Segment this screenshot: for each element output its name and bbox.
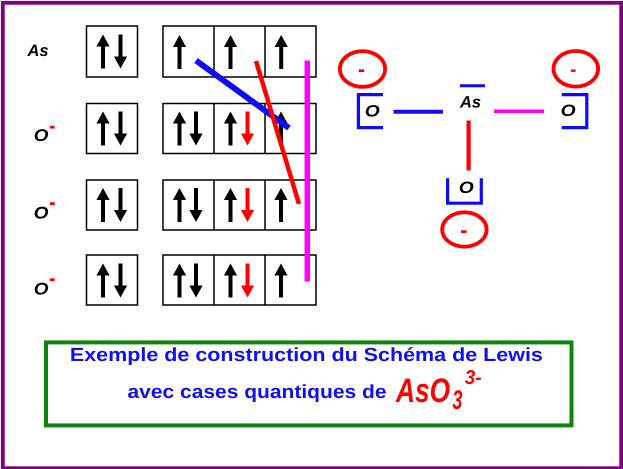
svg-text:AsO: AsO [395,372,450,410]
svg-text:Exemple de construction du Sch: Exemple de construction du Schéma de Lew… [70,345,543,366]
svg-text:3: 3 [452,385,462,415]
svg-text:As: As [459,94,481,112]
svg-text:3-: 3- [465,367,482,389]
svg-text:O: O [561,102,576,120]
svg-text:O: O [34,204,49,223]
svg-text:avec cases quantiques de: avec cases quantiques de [128,382,387,403]
svg-text:O: O [34,126,49,145]
svg-text:As: As [27,42,49,60]
svg-text:O: O [34,280,49,299]
svg-text:O: O [459,179,474,197]
svg-text:O: O [365,103,380,121]
